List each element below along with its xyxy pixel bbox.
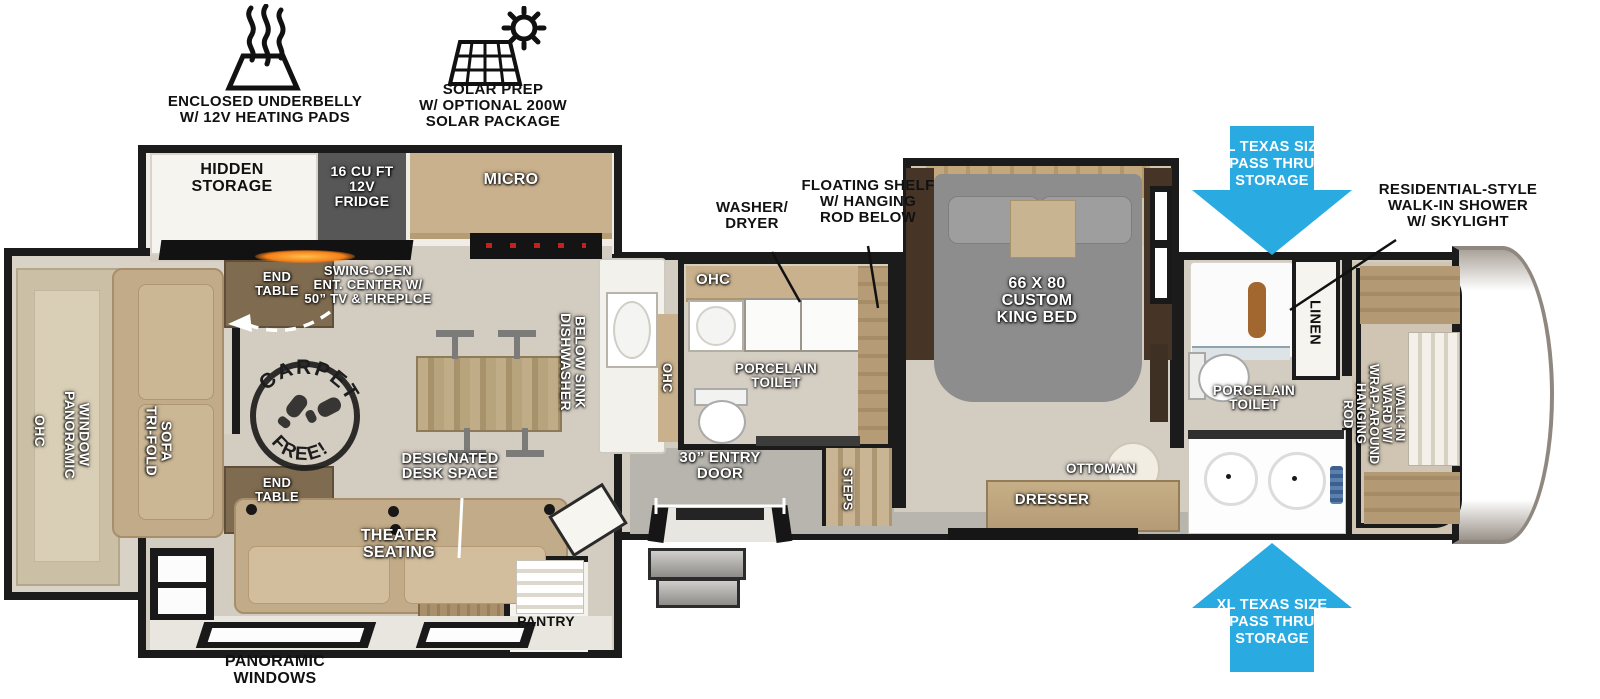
pantry-stairs xyxy=(516,560,584,614)
panoramic-window-pane xyxy=(426,628,525,642)
walk-in-ward-label: WALK-IN WARD W/ WRAP-AROUND HANGING ROD xyxy=(1342,328,1406,500)
wall-entry-bedroom xyxy=(892,252,906,508)
exterior-fold-step xyxy=(648,548,746,580)
faucet-dot xyxy=(1226,474,1231,479)
mid-bath-toilet-bowl xyxy=(698,400,746,444)
micro-label: MICRO xyxy=(428,172,594,189)
ward-shelf-top xyxy=(1360,266,1460,324)
side-window-pane xyxy=(158,556,206,582)
bedroom-tv-panel xyxy=(1150,344,1168,422)
ward-hanging-slats xyxy=(1408,332,1460,466)
faucet-dot xyxy=(1292,476,1297,481)
bedroom-slide-window-pane xyxy=(1155,192,1167,240)
hidden-storage-label: HIDDEN STORAGE xyxy=(156,162,308,196)
underbelly-caption: ENCLOSED UNDERBELLY W/ 12V HEATING PADS xyxy=(140,94,390,126)
pass-thru-storage-label-bottom: XL TEXAS SIZE PASS THRU STORAGE xyxy=(1204,597,1340,648)
front-cap xyxy=(1452,246,1554,544)
bedroom-slide-window-pane xyxy=(1155,248,1167,298)
bedroom-rear-window xyxy=(948,528,1138,540)
pass-thru-storage-label-top: XL TEXAS SIZE PASS THRU STORAGE xyxy=(1204,139,1340,190)
floating-shelf-wardrobe xyxy=(858,266,888,444)
entry-door-sill xyxy=(676,508,764,520)
floating-shelf-callout-label: FLOATING SHELF W/ HANGING ROD BELOW xyxy=(792,178,944,226)
desk-label: DESIGNATED DESK SPACE xyxy=(370,452,530,483)
exterior-fold-step xyxy=(656,578,740,608)
boot-print-icon xyxy=(274,387,345,438)
shower-seat xyxy=(1248,282,1266,338)
linen-label: LINEN xyxy=(1306,282,1321,362)
dining-chair xyxy=(436,330,474,363)
mid-bath-sink-basin xyxy=(696,306,736,346)
microwave-cabinet xyxy=(410,153,612,239)
ottoman-label: OTTOMAN xyxy=(1036,462,1166,476)
fireplace-glow xyxy=(255,250,355,263)
side-window-pane xyxy=(158,588,206,614)
floorplan-canvas: ENCLOSED UNDERBELLY W/ 12V HEATING PADS … xyxy=(0,0,1600,699)
end-table-bottom-label: END TABLE xyxy=(224,476,330,504)
range-knobs xyxy=(486,243,586,248)
interior-steps xyxy=(822,448,892,526)
ohc-midbath-label: OHC xyxy=(696,272,756,288)
dining-table xyxy=(416,356,562,432)
washer xyxy=(744,298,802,352)
panoramic-window-label: PANORAMIC WINDOW xyxy=(62,330,92,540)
mid-bath-counter-dark xyxy=(756,436,860,446)
dishwasher-label: DISHWASHER BELOW SINK xyxy=(558,282,588,442)
porcelain-toilet-mid-label: PORCELAIN TOILET xyxy=(694,362,858,391)
bed-tray xyxy=(1010,200,1076,258)
ohc-kitchen-label: OHC xyxy=(660,348,674,408)
dresser-label: DRESSER xyxy=(992,492,1112,508)
dryer xyxy=(800,298,860,352)
vanity-sink-left xyxy=(1204,452,1258,506)
pantry-label: PANTRY xyxy=(506,614,586,629)
panoramic-windows-label: PANORAMIC WINDOWS xyxy=(190,654,360,688)
shower-callout-label: RESIDENTIAL-STYLE WALK-IN SHOWER W/ SKYL… xyxy=(1346,182,1570,230)
walk-in-shower xyxy=(1190,262,1294,358)
vanity-back-edge xyxy=(1188,430,1344,439)
carpet-free-stamp: CARPET FREE! xyxy=(235,348,374,484)
vanity-sink-right xyxy=(1268,452,1326,510)
solar-caption: SOLAR PREP W/ OPTIONAL 200W SOLAR PACKAG… xyxy=(388,82,598,130)
king-bed-label: 66 X 80 CUSTOM KING BED xyxy=(972,276,1102,327)
theater-stud xyxy=(246,504,257,515)
tri-fold-sofa-label: TRI-FOLD SOFA xyxy=(142,356,173,526)
entry-door-label: 30” ENTRY DOOR xyxy=(648,450,792,482)
ohc-rear-label: OHC xyxy=(32,396,47,466)
heating-pads-icon xyxy=(213,4,313,92)
washer-dryer-callout-label: WASHER/ DRYER xyxy=(700,200,804,232)
dining-chair xyxy=(498,330,536,363)
fridge-label: 16 CU FT 12V FRIDGE xyxy=(320,164,404,208)
wall-bedroom-bath xyxy=(1170,252,1184,448)
theater-seating-label: THEATER SEATING xyxy=(254,528,544,562)
theater-stud xyxy=(388,506,399,517)
solar-panel-sun-icon xyxy=(448,6,552,90)
kitchen-sink-basin xyxy=(613,301,651,359)
steps-label: STEPS xyxy=(840,452,853,526)
panoramic-window-pane xyxy=(208,628,365,642)
end-table-top-label: END TABLE xyxy=(224,270,330,298)
porcelain-toilet-rear-label: PORCELAIN TOILET xyxy=(1196,384,1312,413)
